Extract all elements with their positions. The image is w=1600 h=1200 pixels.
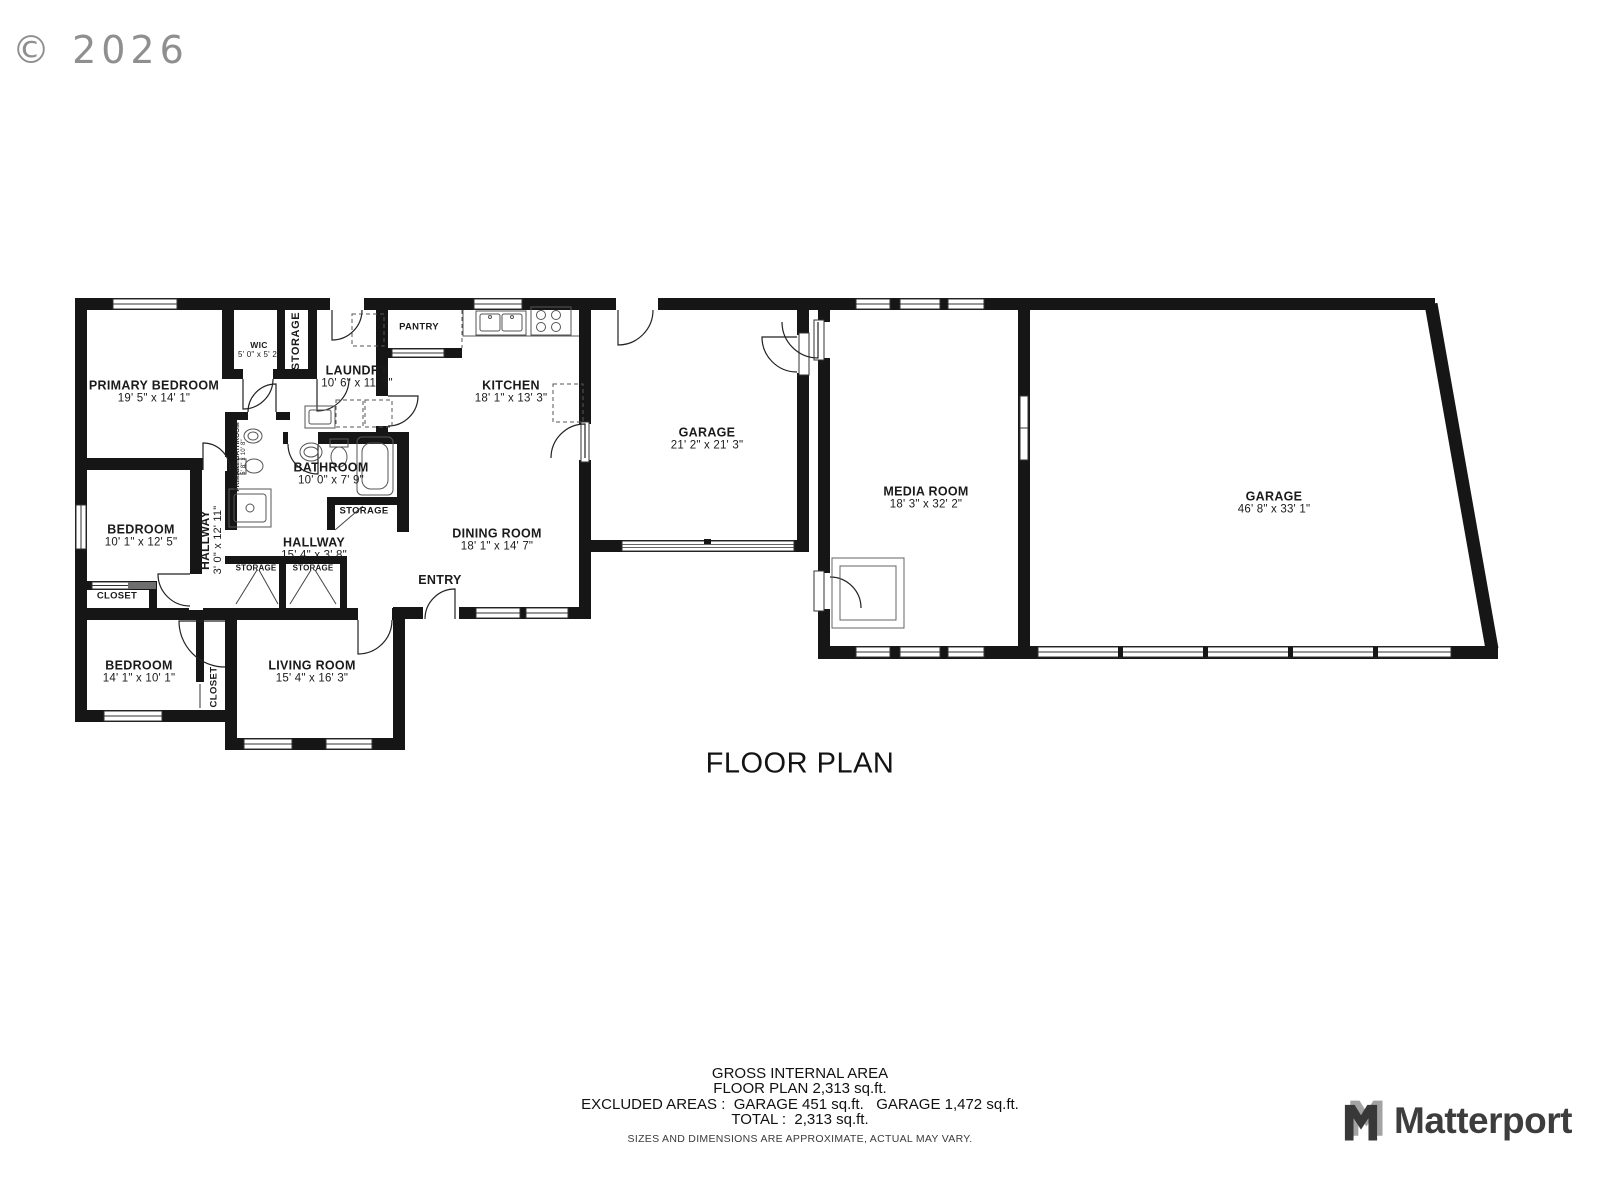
room-label-closet-lower: CLOSET [210,667,221,708]
room-label-storage-upper: STORAGE [290,312,302,370]
room-label-storage-hall-right: STORAGE [293,565,334,574]
wall-openings [189,297,830,710]
room-label-storage-hall-left: STORAGE [236,565,277,574]
kitchen-sink [476,311,526,335]
room-label-bedroom-lower: BEDROOM 14' 1" x 10' 1" [103,659,175,686]
garage-door [622,539,794,551]
room-label-primary-bathroom: PRIMARY BATHROOM 5' 8" x 10' 8" [234,422,248,491]
room-label-storage-bath: STORAGE [340,507,389,518]
room-label-dining-room: DINING ROOM 18' 1" x 14' 7" [452,527,541,554]
room-label-pantry: PANTRY [399,323,439,334]
stove [531,307,571,335]
brand-name: Matterport [1394,1100,1572,1142]
room-label-laundry: LAUNDRY 10' 6" x 11' 5" [321,364,393,391]
room-label-living-room: LIVING ROOM 15' 4" x 16' 3" [268,659,355,686]
page-title: FLOOR PLAN [706,748,895,781]
room-label-bathroom: BATHROOM 10' 0" x 7' 9" [293,461,368,488]
media-room-fixture [832,558,904,628]
room-label-closet-middle: CLOSET [97,592,137,603]
laundry-sink [305,406,335,428]
room-label-hallway-long: HALLWAY 3' 0" x 12' 11" [199,506,225,575]
room-label-kitchen: KITCHEN 18' 1" x 13' 3" [475,379,547,406]
room-label-media-room: MEDIA ROOM 18' 3" x 32' 2" [883,485,968,512]
brand-logo: Matterport [1338,1098,1572,1144]
gross-internal-area-line: GROSS INTERNAL AREA [0,1066,1600,1081]
floor-plan-area-line: FLOOR PLAN 2,313 sq.ft. [0,1081,1600,1096]
room-label-primary-bedroom: PRIMARY BEDROOM 19' 5" x 14' 1" [89,379,219,406]
room-label-wic: WIC 5' 0" x 5' 2" [238,341,280,359]
slanted-garage-wall [1431,304,1492,649]
room-label-garage-small: GARAGE 21' 2" x 21' 3" [671,426,743,453]
room-label-entry: ENTRY [418,573,461,587]
room-label-bedroom-middle: BEDROOM 10' 1" x 12' 5" [105,523,177,550]
floor-plan-drawing [0,0,1600,1200]
closet-slider-dark-panel [128,582,156,589]
room-label-garage-large: GARAGE 46' 8" x 33' 1" [1238,490,1310,517]
room-label-hallway-short: HALLWAY 15' 4" x 3' 8" [281,536,347,563]
matterport-icon [1338,1098,1384,1144]
floor-plan-page: { "copyright": "© 2026", "plan_title": "… [0,0,1600,1200]
